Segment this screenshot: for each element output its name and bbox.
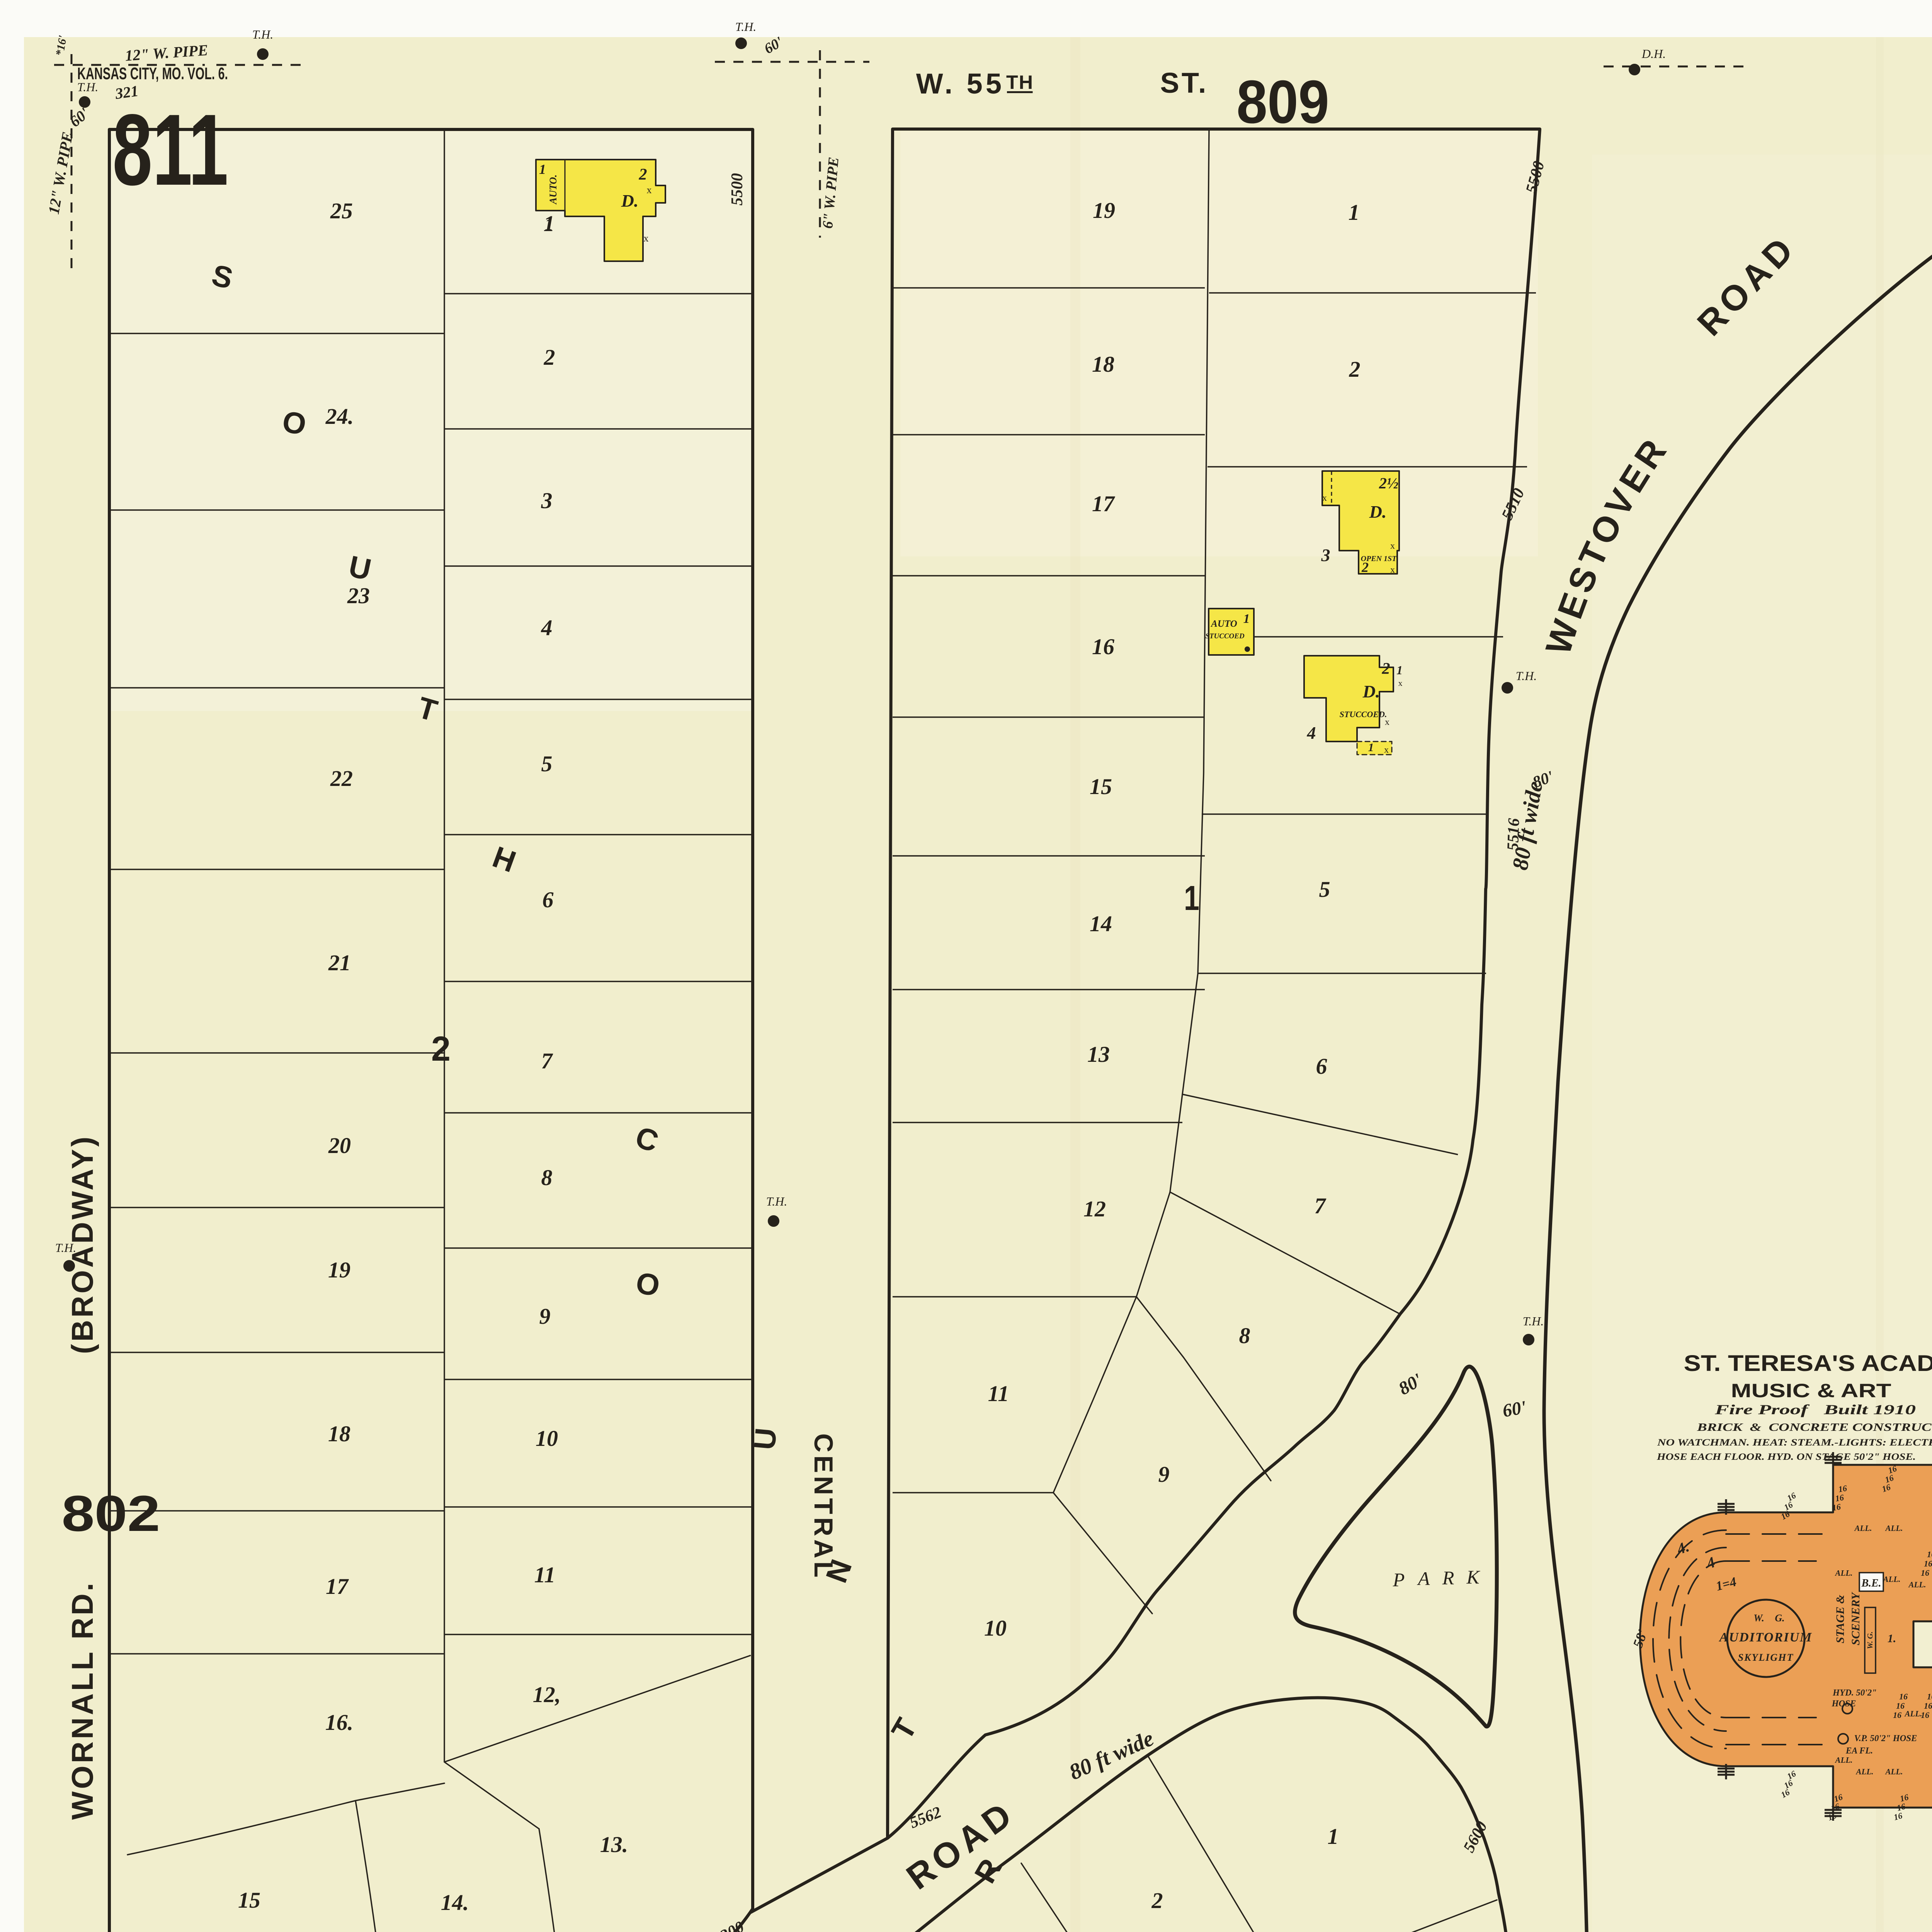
svg-text:2: 2 [1349,357,1361,382]
svg-text:18: 18 [1092,352,1114,377]
svg-text:16: 16 [1921,1710,1929,1720]
svg-text:20: 20 [328,1133,351,1158]
svg-text:1: 1 [545,215,553,234]
svg-text:2: 2 [1382,660,1390,678]
svg-text:3: 3 [541,488,553,513]
svg-text:ALL.: ALL. [1904,1709,1922,1718]
svg-text:10: 10 [536,1426,558,1451]
svg-text:ALL.: ALL. [1835,1755,1853,1765]
svg-text:x: x [1390,565,1395,575]
svg-text:x: x [1322,493,1327,503]
svg-text:STAGE &: STAGE & [1834,1595,1847,1643]
svg-text:14: 14 [1090,911,1112,936]
svg-text:16: 16 [1893,1710,1901,1720]
svg-text:4: 4 [1307,723,1316,743]
svg-text:9: 9 [1158,1462,1170,1487]
svg-text:KANSAS CITY, MO. VOL. 6.: KANSAS CITY, MO. VOL. 6. [77,64,228,83]
svg-text:19: 19 [328,1257,350,1282]
svg-text:W. 55: W. 55 [916,68,1005,100]
svg-text:7: 7 [541,1048,553,1073]
svg-text:ALL.: ALL. [1885,1767,1903,1776]
svg-text:MUSIC & ART: MUSIC & ART [1731,1380,1891,1401]
svg-text:1: 1 [1396,663,1403,677]
svg-text:802: 802 [62,1485,160,1542]
svg-text:K: K [1466,1566,1480,1588]
svg-text:4: 4 [541,615,553,640]
svg-text:ST.: ST. [1160,67,1209,99]
svg-text:60': 60' [1501,1397,1528,1421]
svg-text:16: 16 [1921,1568,1929,1578]
svg-text:D.: D. [1369,502,1387,522]
svg-text:ALL.: ALL. [1854,1524,1872,1533]
svg-text:AUTO.: AUTO. [548,175,559,205]
svg-text:x: x [1390,541,1395,551]
svg-text:2: 2 [431,1030,451,1068]
svg-text:16: 16 [1927,1549,1932,1559]
svg-text:321: 321 [114,82,139,102]
svg-text:2: 2 [639,166,647,184]
svg-text:15: 15 [1090,774,1112,799]
svg-text:11: 11 [988,1381,1009,1406]
svg-text:T.H.: T.H. [252,27,274,41]
svg-text:12,: 12, [533,1682,561,1707]
svg-text:AUDITORIUM: AUDITORIUM [1719,1630,1812,1645]
svg-text:U: U [747,1427,783,1451]
svg-text:AUTO: AUTO [1210,619,1237,629]
svg-text:BRICK & CONCRETE CONSTRUCTIO: BRICK & CONCRETE CONSTRUCTION. [1697,1421,1932,1434]
svg-text:16: 16 [1896,1701,1905,1711]
svg-text:13.: 13. [600,1832,628,1857]
svg-text:(BROADWAY): (BROADWAY) [65,1134,99,1354]
svg-text:23: 23 [347,583,370,608]
svg-text:9: 9 [539,1304,551,1329]
svg-text:8: 8 [1239,1323,1250,1348]
svg-text:17: 17 [326,1574,349,1599]
svg-text:16: 16 [1924,1701,1932,1711]
svg-text:D.H.: D.H. [1641,47,1666,61]
svg-text:T.H.: T.H. [1523,1314,1544,1328]
svg-text:G.: G. [1775,1612,1784,1624]
svg-text:16: 16 [1924,1559,1932,1568]
svg-text:12: 12 [1083,1196,1106,1221]
svg-text:B.E.: B.E. [1861,1577,1881,1589]
svg-text:16: 16 [1832,1502,1842,1512]
svg-text:x: x [1384,745,1389,755]
svg-text:811: 811 [112,93,228,206]
svg-text:15: 15 [238,1888,260,1913]
svg-text:809: 809 [1236,68,1329,136]
svg-text:Fire Proof Built 1910: Fire Proof Built 1910 [1714,1402,1916,1417]
svg-text:R: R [1442,1567,1454,1588]
svg-text:5: 5 [1319,877,1330,902]
svg-text:16: 16 [1927,1692,1932,1701]
svg-text:10: 10 [984,1616,1007,1641]
svg-text:SCENERY: SCENERY [1849,1592,1862,1645]
svg-text:3: 3 [1321,545,1330,565]
svg-text:1: 1 [539,162,546,177]
svg-text:P: P [1393,1569,1405,1590]
svg-text:1: 1 [1243,612,1250,626]
svg-text:ALL.: ALL. [1885,1524,1903,1533]
svg-text:x: x [647,184,652,196]
svg-text:7: 7 [1315,1193,1327,1218]
svg-text:T.H.: T.H. [766,1194,787,1208]
svg-text:13: 13 [1087,1042,1110,1067]
svg-text:EA FL.: EA FL. [1845,1746,1873,1755]
svg-text:2½: 2½ [1379,474,1398,492]
svg-text:2: 2 [1151,1888,1163,1913]
svg-text:19: 19 [1093,198,1115,223]
svg-text:16: 16 [1899,1692,1908,1701]
svg-text:ALL.: ALL. [1883,1575,1901,1584]
svg-text:25: 25 [330,198,353,223]
svg-text:8: 8 [541,1165,553,1190]
svg-text:x: x [1398,678,1403,688]
svg-text:NO WATCHMAN. HEAT: STEAM.-LIGH: NO WATCHMAN. HEAT: STEAM.-LIGHTS: ELECTR… [1657,1437,1932,1448]
svg-text:14.: 14. [441,1890,469,1915]
svg-text:T.H.: T.H. [735,20,757,34]
svg-text:1: 1 [1349,200,1360,225]
svg-text:16.: 16. [325,1710,354,1735]
svg-text:22: 22 [330,766,353,791]
svg-text:1: 1 [1328,1824,1339,1849]
svg-text:1: 1 [1184,879,1199,918]
svg-text:16: 16 [1092,634,1114,659]
svg-text:24.: 24. [325,404,354,429]
svg-text:5: 5 [541,751,553,776]
svg-text:TH: TH [1006,71,1034,93]
svg-text:WORNALL RD.: WORNALL RD. [65,1580,99,1820]
svg-text:ALL.: ALL. [1835,1568,1853,1578]
svg-text:18: 18 [328,1421,350,1446]
svg-text:21: 21 [328,950,351,975]
svg-text:V.P. 50'2" HOSE: V.P. 50'2" HOSE [1854,1733,1917,1743]
svg-text:17: 17 [1092,491,1115,516]
svg-text:2: 2 [1361,560,1369,575]
svg-text:ALL.: ALL. [1855,1767,1874,1776]
svg-text:1.: 1. [1888,1632,1896,1645]
svg-text:6: 6 [1316,1054,1327,1079]
svg-text:T.H.: T.H. [1516,669,1537,683]
svg-text:HOSE: HOSE [1832,1699,1856,1708]
svg-text:STUCCOED.: STUCCOED. [1340,709,1387,719]
svg-text:D.: D. [621,191,639,211]
svg-text:x: x [644,233,649,244]
svg-text:2: 2 [544,345,555,370]
svg-text:W.: W. [1753,1612,1764,1624]
svg-text:HYD. 50'2": HYD. 50'2" [1832,1688,1877,1697]
svg-text:6: 6 [543,887,554,912]
svg-text:SKYLIGHT: SKYLIGHT [1738,1652,1794,1663]
svg-text:HOSE EACH FLOOR. HYD. ON STAGE: HOSE EACH FLOOR. HYD. ON STAGE 50'2" HOS… [1656,1452,1916,1462]
svg-text:5516: 5516 [1504,818,1523,851]
svg-text:5500: 5500 [728,173,746,206]
svg-text:x: x [1385,717,1389,727]
svg-text:ALL.: ALL. [1908,1580,1926,1589]
svg-text:W. G.: W. G. [1866,1631,1874,1649]
svg-text:ST. TERESA'S ACADEMY: ST. TERESA'S ACADEMY [1684,1351,1932,1376]
svg-text:1: 1 [1368,741,1374,754]
svg-text:A: A [1417,1568,1430,1589]
svg-text:STUCCOED: STUCCOED [1205,632,1245,640]
svg-text:11: 11 [534,1562,556,1587]
svg-text:D.: D. [1362,682,1380,701]
